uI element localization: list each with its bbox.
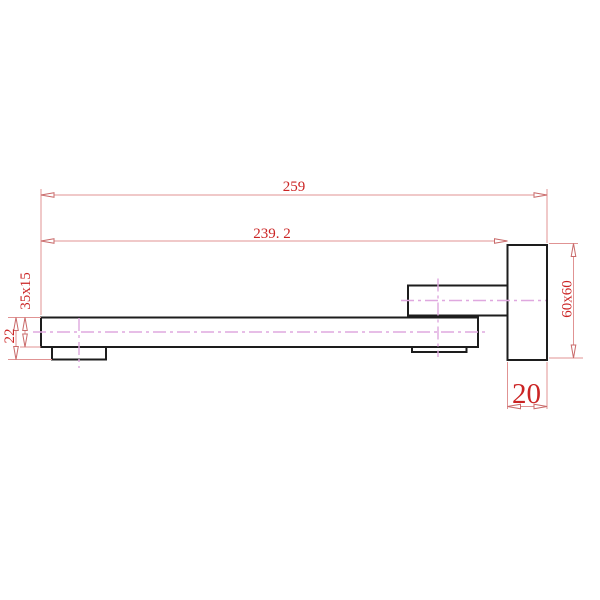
dim-spout-section-label: 35x15 (18, 272, 34, 310)
arrowhead-icon (495, 239, 508, 244)
arrowhead-icon (23, 318, 28, 331)
arrowhead-icon (23, 334, 28, 347)
dim-overall-length-label: 259 (283, 179, 306, 195)
wall-plate-outline (508, 245, 548, 360)
spout-underside-lip-outline (412, 347, 467, 352)
drawing-canvas: 259 239. 2 35x15 22 60x60 20 (0, 0, 600, 600)
dim-wall-plate-thickness-label: 20 (512, 378, 541, 410)
part-outlines (41, 245, 547, 360)
arrowhead-icon (14, 347, 19, 360)
technical-drawing-svg: 259 239. 2 35x15 22 60x60 20 (0, 0, 600, 600)
arrowhead-icon (571, 244, 576, 257)
dim-outlet-depth-label: 22 (2, 329, 18, 344)
arrowhead-icon (41, 193, 54, 198)
dim-spout-projection-label: 239. 2 (253, 226, 291, 242)
arrowhead-icon (41, 239, 54, 244)
arrowhead-icon (571, 345, 576, 358)
arrowhead-icon (534, 193, 547, 198)
dim-wall-plate-face-label: 60x60 (560, 280, 576, 318)
